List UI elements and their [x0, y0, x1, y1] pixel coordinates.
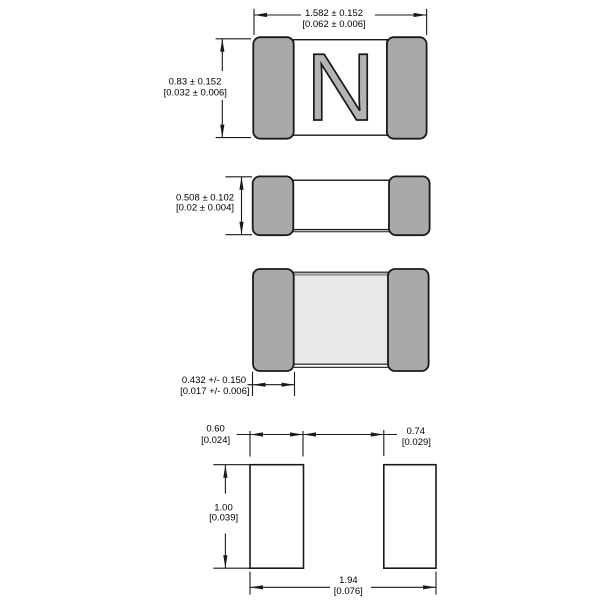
- svg-text:0.83 ± 0.152: 0.83 ± 0.152: [169, 77, 222, 88]
- svg-text:N: N: [306, 34, 375, 141]
- svg-text:0.432 +/- 0.150: 0.432 +/- 0.150: [182, 375, 246, 386]
- svg-text:1.94: 1.94: [339, 575, 358, 586]
- svg-text:1.582 ± 0.152: 1.582 ± 0.152: [305, 8, 363, 19]
- svg-text:[0.02 ± 0.004]: [0.02 ± 0.004]: [176, 203, 234, 214]
- svg-text:[0.076]: [0.076]: [334, 586, 363, 597]
- svg-text:[0.032 ± 0.006]: [0.032 ± 0.006]: [164, 88, 227, 99]
- svg-text:0.74: 0.74: [407, 426, 426, 437]
- svg-text:[0.039]: [0.039]: [209, 513, 238, 524]
- svg-text:0.60: 0.60: [206, 423, 225, 434]
- svg-text:[0.029]: [0.029]: [402, 437, 431, 448]
- svg-text:[0.062 ± 0.006]: [0.062 ± 0.006]: [302, 19, 365, 30]
- svg-text:[0.024]: [0.024]: [201, 435, 230, 446]
- svg-text:[0.017 +/- 0.006]: [0.017 +/- 0.006]: [180, 386, 249, 397]
